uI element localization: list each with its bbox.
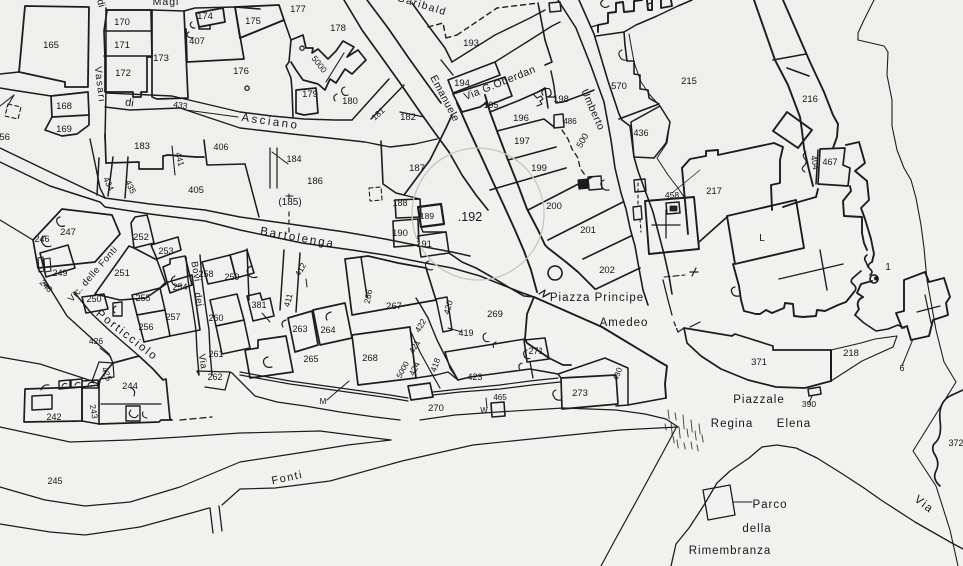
svg-text:194: 194 [454, 78, 470, 89]
svg-text:176: 176 [233, 66, 249, 77]
svg-text:263: 263 [292, 324, 307, 334]
svg-text:Parco: Parco [752, 499, 787, 511]
svg-text:262: 262 [207, 372, 222, 382]
svg-text:Elena: Elena [777, 418, 811, 430]
svg-text:170: 170 [114, 17, 130, 28]
svg-text:193: 193 [463, 38, 479, 49]
svg-text:196: 196 [513, 113, 529, 124]
svg-text:197: 197 [514, 136, 530, 147]
svg-text:Amedeo: Amedeo [600, 317, 649, 329]
svg-text:253: 253 [158, 246, 173, 256]
svg-text:195: 195 [483, 100, 498, 110]
svg-text:184: 184 [286, 154, 301, 164]
svg-text:423: 423 [467, 372, 482, 382]
svg-text:246: 246 [34, 234, 49, 244]
svg-text:256: 256 [138, 322, 153, 332]
svg-text:Rimembranza: Rimembranza [689, 545, 772, 557]
svg-text:188: 188 [392, 198, 407, 208]
svg-text:381: 381 [251, 300, 266, 310]
svg-text:251: 251 [114, 268, 130, 279]
svg-text:173: 173 [153, 53, 169, 64]
svg-text:265: 265 [303, 354, 318, 364]
svg-text:390: 390 [802, 399, 816, 409]
svg-text:186: 186 [307, 176, 323, 187]
svg-text:458: 458 [665, 190, 679, 200]
svg-text:201: 201 [580, 225, 596, 236]
svg-text:406: 406 [213, 142, 228, 152]
svg-text:(185): (185) [278, 197, 301, 208]
svg-text:6: 6 [899, 363, 904, 373]
svg-text:174: 174 [197, 11, 213, 22]
svg-text:191: 191 [416, 239, 432, 250]
svg-text:254: 254 [172, 282, 187, 292]
svg-text:179: 179 [302, 89, 318, 100]
svg-text:247: 247 [60, 227, 76, 238]
svg-text:178: 178 [330, 23, 346, 34]
svg-text:200: 200 [546, 201, 562, 212]
svg-text:190: 190 [392, 228, 408, 239]
svg-text:273: 273 [572, 388, 588, 399]
svg-text:Regina: Regina [711, 418, 753, 430]
svg-text:242: 242 [46, 412, 61, 422]
svg-text:.192: .192 [458, 210, 482, 224]
svg-text:407: 407 [189, 36, 205, 47]
svg-text:259: 259 [224, 272, 239, 282]
svg-text:202: 202 [599, 265, 615, 276]
svg-text:di: di [124, 96, 134, 109]
svg-text:182: 182 [400, 112, 416, 123]
svg-text:271: 271 [528, 346, 543, 356]
svg-text:570: 570 [611, 81, 627, 92]
svg-text:216: 216 [802, 94, 818, 105]
svg-text:168: 168 [56, 101, 72, 112]
svg-text:270: 270 [428, 403, 444, 414]
svg-text:199: 199 [531, 163, 547, 174]
svg-text:255: 255 [135, 293, 150, 303]
svg-text:260: 260 [208, 313, 223, 323]
svg-text:436: 436 [633, 128, 648, 138]
svg-text:Piazzale: Piazzale [733, 394, 784, 406]
svg-text:1: 1 [885, 262, 891, 273]
svg-text:267: 267 [386, 301, 402, 312]
svg-text:269: 269 [487, 309, 503, 320]
svg-text:215: 215 [681, 76, 697, 87]
svg-text:217: 217 [706, 186, 722, 197]
svg-text:245: 245 [47, 476, 62, 486]
svg-text:261: 261 [208, 349, 223, 359]
svg-text:169: 169 [56, 124, 72, 135]
svg-text:183: 183 [134, 141, 150, 152]
svg-text:172: 172 [115, 68, 131, 79]
svg-text:467: 467 [822, 157, 837, 167]
svg-text:268: 268 [362, 353, 378, 364]
svg-text:Piazza Principe: Piazza Principe [550, 292, 644, 304]
svg-text:171: 171 [114, 40, 130, 51]
svg-text:198: 198 [553, 94, 569, 105]
svg-text:258: 258 [198, 269, 213, 279]
svg-text:250: 250 [86, 294, 101, 304]
svg-text:372: 372 [948, 438, 963, 448]
svg-text:M: M [320, 397, 327, 406]
svg-text:L: L [759, 233, 765, 244]
svg-text:Magi: Magi [153, 0, 180, 8]
svg-text:165: 165 [43, 40, 59, 51]
svg-text:371: 371 [751, 357, 767, 368]
svg-text:249: 249 [52, 268, 67, 278]
svg-text:187: 187 [409, 163, 425, 174]
svg-text:405: 405 [188, 185, 204, 196]
svg-text:264: 264 [320, 325, 335, 335]
svg-text:189: 189 [420, 211, 434, 221]
svg-text:465: 465 [493, 393, 507, 402]
svg-text:177: 177 [290, 4, 306, 15]
svg-text:486: 486 [563, 117, 577, 126]
svg-text:433: 433 [173, 99, 189, 111]
svg-text:257: 257 [165, 312, 180, 322]
svg-text:252: 252 [133, 232, 149, 243]
svg-text:180: 180 [342, 96, 358, 107]
svg-text:W: W [480, 406, 488, 415]
svg-text:244: 244 [122, 381, 138, 392]
svg-text:della: della [742, 523, 771, 535]
svg-text:456: 456 [0, 132, 10, 143]
svg-text:218: 218 [843, 348, 859, 359]
svg-text:419: 419 [458, 328, 473, 338]
svg-text:175: 175 [245, 16, 261, 27]
svg-text:426: 426 [89, 336, 103, 346]
